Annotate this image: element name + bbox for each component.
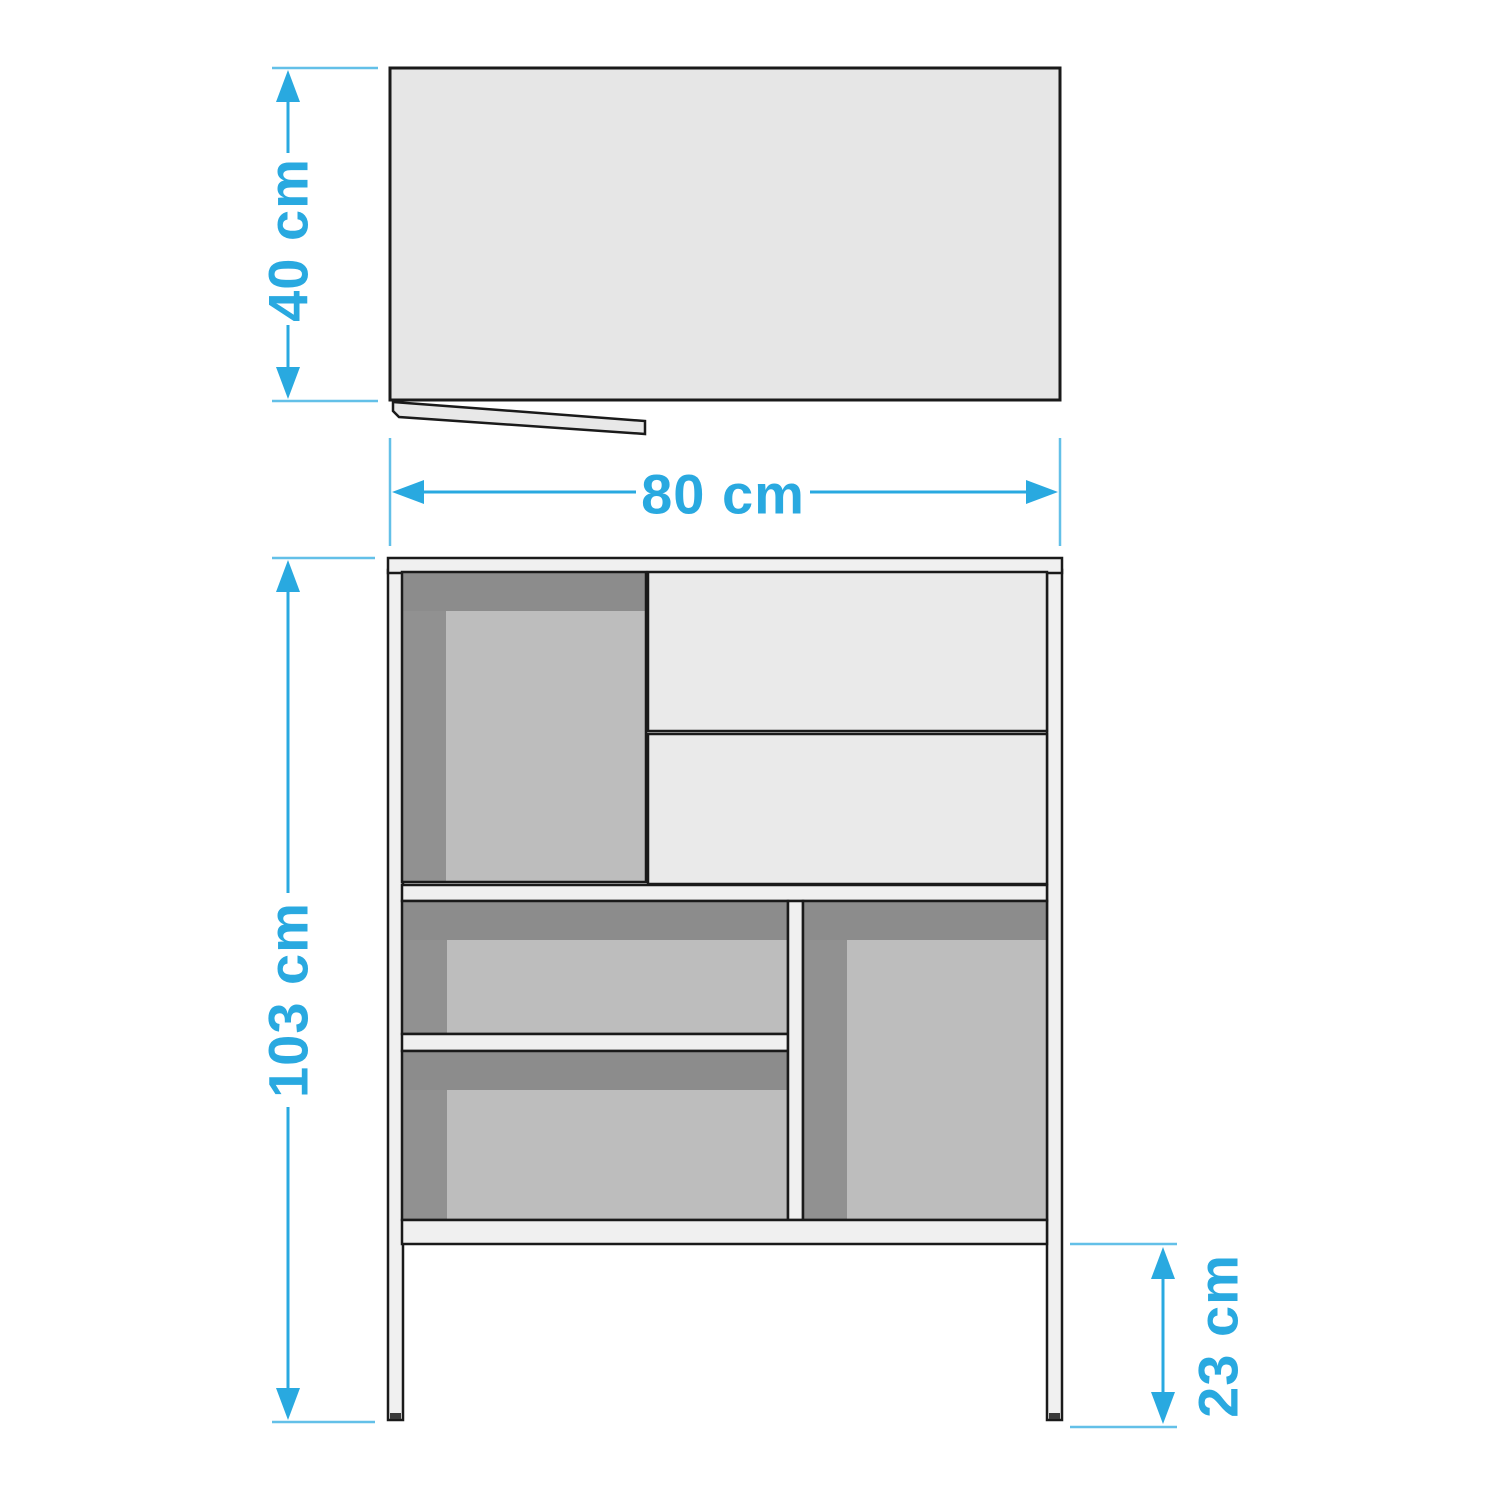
middle-divider-panel (402, 885, 1047, 901)
arrow-down-icon (276, 1388, 300, 1420)
dimension-label-height: 103 cm (257, 902, 320, 1098)
vertical-divider-panel (788, 901, 803, 1220)
drawer-front-bottom (648, 734, 1047, 884)
arrow-up-icon (276, 560, 300, 592)
lower-left-shelf (402, 1034, 788, 1051)
dimension-label-width: 80 cm (641, 463, 805, 526)
top-view (390, 68, 1060, 434)
dimension-height: 103 cm (257, 558, 376, 1422)
dimension-leg-height: 23 cm (1070, 1244, 1250, 1427)
diagram-canvas: 40 cm 80 cm 103 cm (0, 0, 1500, 1500)
arrow-down-icon (1151, 1392, 1175, 1424)
lower-right-compartment (803, 901, 1047, 1220)
right-side-panel-and-leg (1047, 570, 1062, 1420)
dimension-label-depth: 40 cm (257, 158, 320, 322)
compartment-shadow (403, 573, 645, 611)
dimension-depth: 40 cm (257, 68, 379, 401)
compartment-side-shade (804, 940, 847, 1220)
lower-left-lower-compartment (402, 1051, 788, 1220)
compartment-back (447, 1090, 787, 1220)
lower-left-upper-compartment (402, 901, 788, 1034)
right-leg-foot (1049, 1413, 1060, 1419)
upper-left-compartment (402, 572, 646, 882)
arrow-up-icon (276, 70, 300, 102)
arrow-right-icon (1026, 480, 1058, 504)
arrow-left-icon (392, 480, 424, 504)
dimension-width: 80 cm (390, 438, 1060, 546)
compartment-side-shade (403, 940, 447, 1033)
arrow-up-icon (1151, 1247, 1175, 1279)
compartment-shadow (403, 902, 787, 940)
compartment-side-shade (403, 1090, 447, 1220)
compartment-back (847, 940, 1046, 1220)
arrow-down-icon (276, 367, 300, 399)
compartment-back (447, 940, 787, 1033)
open-door-flap (393, 402, 645, 434)
top-view-panel (390, 68, 1060, 400)
compartment-back (446, 611, 645, 882)
dimension-label-leg-height: 23 cm (1187, 1254, 1250, 1418)
bottom-panel (402, 1220, 1047, 1244)
compartment-side-shade (403, 611, 446, 882)
compartment-shadow (804, 902, 1046, 940)
left-leg-foot (390, 1413, 401, 1419)
compartment-shadow (403, 1052, 787, 1090)
front-view (388, 558, 1062, 1420)
furniture-dimension-diagram: 40 cm 80 cm 103 cm (0, 0, 1500, 1500)
drawer-front-top (648, 572, 1047, 731)
